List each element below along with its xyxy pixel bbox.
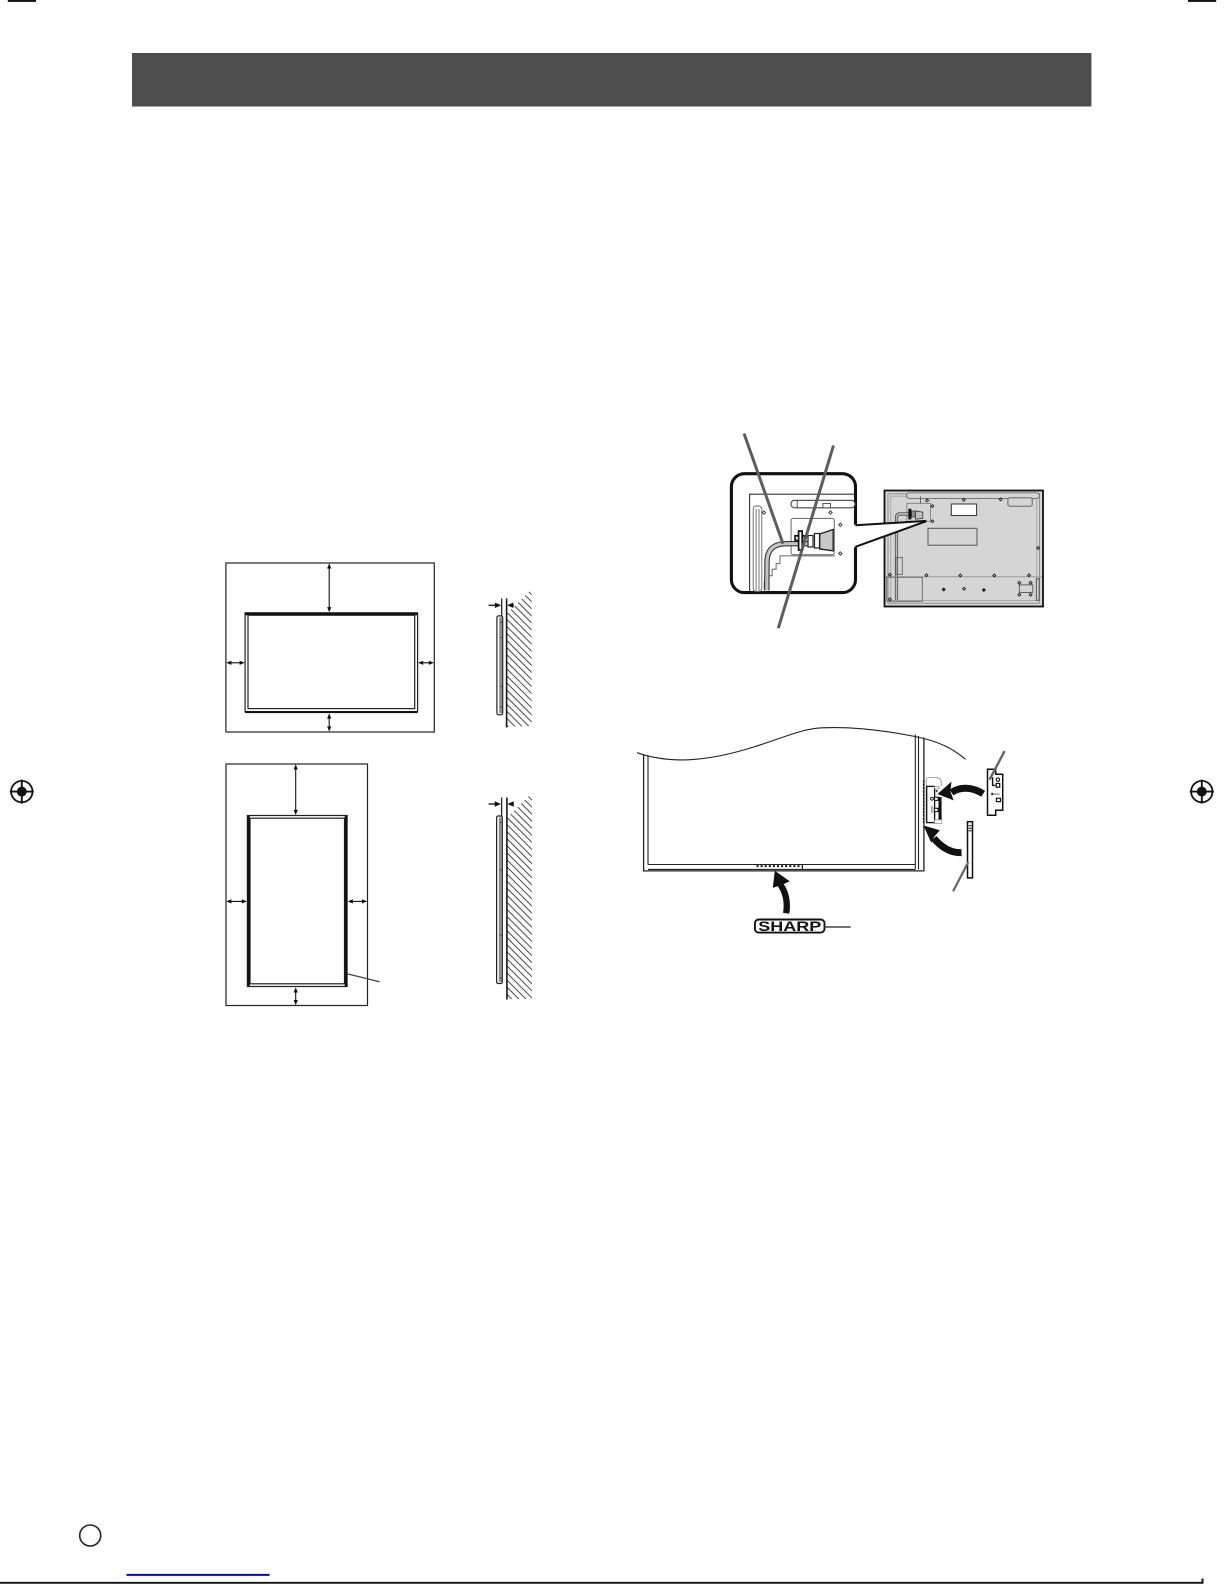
svg-text:SHARP: SHARP bbox=[758, 918, 821, 934]
